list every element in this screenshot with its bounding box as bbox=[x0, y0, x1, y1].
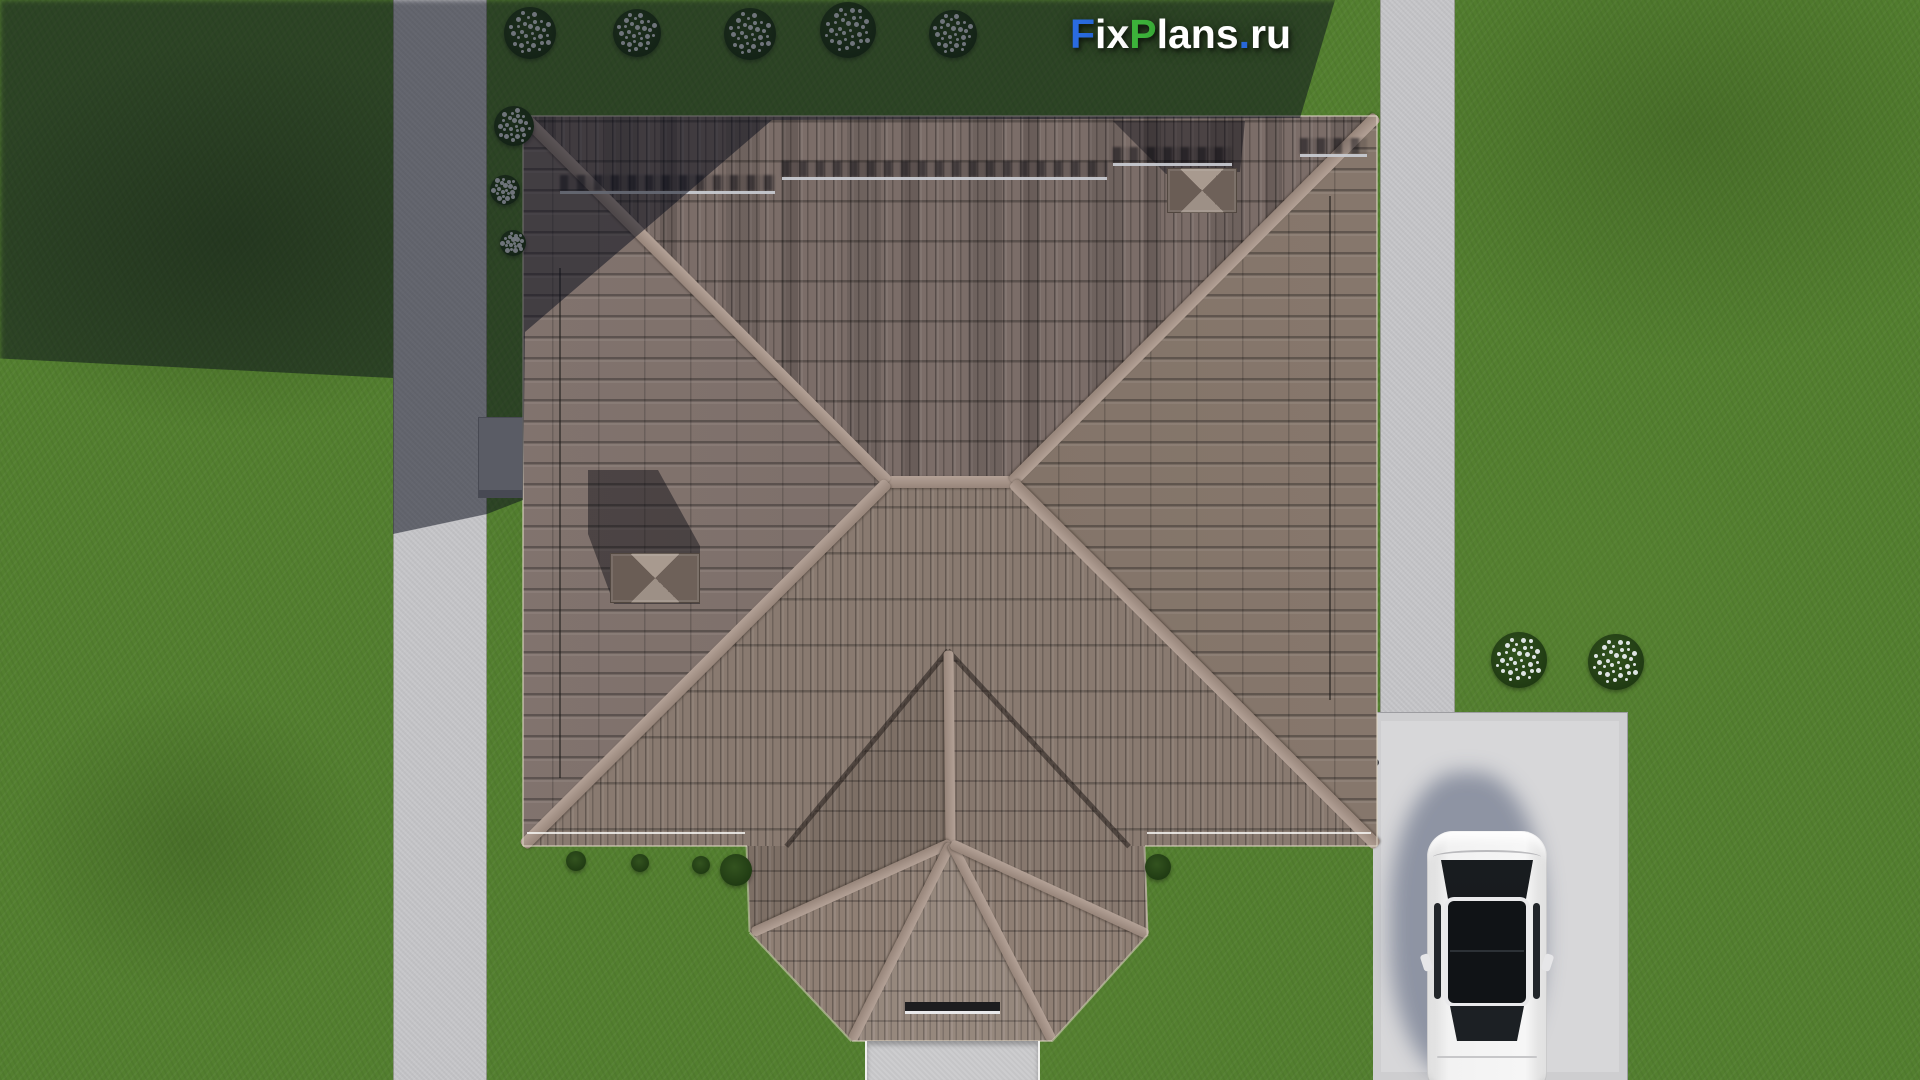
car-roof-seam bbox=[1450, 950, 1524, 952]
green-bush bbox=[692, 856, 710, 874]
flower-dot bbox=[1496, 664, 1499, 667]
flower-dot bbox=[1622, 654, 1627, 659]
flower-dot bbox=[1509, 657, 1513, 661]
snow-guard-bar bbox=[1300, 154, 1367, 157]
flower-dot bbox=[1620, 648, 1624, 652]
gutter-highlight bbox=[527, 832, 745, 835]
flower-dot bbox=[1632, 651, 1637, 656]
snow-guard-shadow bbox=[1300, 138, 1367, 154]
flower-dot bbox=[1528, 662, 1533, 667]
flower-dot bbox=[1515, 643, 1518, 646]
roof-valley bbox=[946, 648, 1131, 847]
roof-ridge bbox=[1008, 478, 1381, 850]
flower-dot bbox=[1513, 661, 1517, 665]
flower-dot bbox=[1508, 670, 1513, 675]
roof-eave-line bbox=[1376, 116, 1378, 846]
flower-dot bbox=[1625, 664, 1630, 669]
roof-ridge bbox=[944, 650, 956, 843]
flower-dot bbox=[1594, 654, 1598, 658]
entry-doormat bbox=[905, 1002, 1000, 1011]
brand-letter: . bbox=[1239, 11, 1250, 57]
green-bush bbox=[631, 854, 649, 872]
flower-dot bbox=[1520, 659, 1523, 662]
snow-guard-shadow bbox=[782, 161, 1107, 177]
flower-dot bbox=[1612, 645, 1615, 648]
flower-dot bbox=[1506, 663, 1509, 666]
flower-dot bbox=[1627, 671, 1631, 675]
flower-dot bbox=[1603, 665, 1606, 668]
flower-dot bbox=[1516, 676, 1520, 680]
green-bush bbox=[566, 851, 586, 871]
flower-dot bbox=[1505, 643, 1510, 648]
flower-dot bbox=[1515, 668, 1518, 671]
flower-dot bbox=[1517, 651, 1522, 656]
flower-dot bbox=[1528, 676, 1531, 679]
flower-dot bbox=[1530, 646, 1533, 649]
flower-bush bbox=[1491, 632, 1547, 688]
flower-dot bbox=[1625, 678, 1628, 681]
roof-eave-line bbox=[749, 931, 852, 1041]
gutter-highlight bbox=[1147, 832, 1371, 835]
car-side-window-right bbox=[1533, 903, 1540, 999]
flower-dot bbox=[1626, 641, 1630, 645]
flower-dot bbox=[1606, 659, 1610, 663]
flower-dot bbox=[1530, 669, 1534, 673]
flower-dot bbox=[1593, 666, 1596, 669]
brand-letter: P bbox=[1129, 11, 1156, 57]
flower-dot bbox=[1602, 645, 1607, 650]
flower-dot bbox=[1532, 655, 1536, 659]
flower-dot bbox=[1500, 658, 1505, 663]
brand-letter: ru bbox=[1250, 11, 1291, 57]
brand-letter: F bbox=[1070, 11, 1095, 57]
car-roof-glass bbox=[1448, 901, 1526, 1003]
roof-eave-line bbox=[1145, 845, 1377, 847]
flower-dot bbox=[1523, 646, 1527, 650]
render-scene: FixPlans.ru bbox=[0, 0, 1920, 1080]
flower-dot bbox=[1501, 669, 1505, 673]
roof-eave-line bbox=[523, 845, 747, 847]
flower-dot bbox=[1598, 671, 1602, 675]
porch-step-highlight bbox=[905, 1011, 1000, 1014]
flower-dot bbox=[1605, 672, 1610, 677]
roof-ridge bbox=[519, 478, 892, 850]
roof-valley bbox=[784, 648, 950, 847]
roof-conductor-line bbox=[1329, 196, 1331, 700]
flower-dot bbox=[1510, 638, 1514, 642]
flower-dot bbox=[1505, 651, 1508, 654]
flower-dot bbox=[1509, 678, 1512, 681]
snow-guard-bar bbox=[1113, 163, 1232, 166]
flower-dot bbox=[1529, 639, 1533, 643]
flower-dot bbox=[1521, 671, 1526, 676]
flower-dot bbox=[1627, 648, 1630, 651]
flower-dot bbox=[1607, 640, 1611, 644]
flower-dot bbox=[1512, 648, 1516, 652]
porch-steps bbox=[865, 1041, 1040, 1080]
flower-dot bbox=[1618, 640, 1623, 645]
brand-letter: lans bbox=[1157, 11, 1239, 57]
flower-dot bbox=[1614, 653, 1619, 658]
roof-ridge bbox=[888, 476, 1012, 488]
flower-dot bbox=[1619, 667, 1622, 670]
roof-eave-line bbox=[1051, 933, 1148, 1041]
roof-conductor-line bbox=[559, 268, 561, 778]
snow-guard-bar bbox=[782, 177, 1107, 180]
flower-dot bbox=[1535, 649, 1540, 654]
green-bush bbox=[1145, 854, 1171, 880]
flower-dot bbox=[1606, 680, 1609, 683]
flower-dot bbox=[1633, 663, 1636, 666]
flower-dot bbox=[1536, 661, 1539, 664]
flower-dot bbox=[1633, 670, 1638, 675]
flower-dot bbox=[1525, 652, 1530, 657]
flower-dot bbox=[1522, 665, 1525, 668]
brand-watermark: FixPlans.ru bbox=[1070, 11, 1291, 58]
flower-dot bbox=[1629, 657, 1633, 661]
snow-guard-shadow bbox=[1113, 147, 1232, 163]
flower-dot bbox=[1612, 670, 1615, 673]
car-trunk-seam bbox=[1437, 1056, 1537, 1058]
flower-dot bbox=[1521, 638, 1526, 643]
flower-dot bbox=[1602, 653, 1605, 656]
flower-dot bbox=[1617, 661, 1620, 664]
flower-dot bbox=[1613, 678, 1617, 682]
flower-dot bbox=[1618, 673, 1623, 678]
flower-dot bbox=[1497, 652, 1501, 656]
green-bush bbox=[720, 854, 752, 886]
flower-dot bbox=[1597, 660, 1602, 665]
flower-dot bbox=[1609, 650, 1613, 654]
flower-dot bbox=[1536, 668, 1541, 673]
brand-letter: ix bbox=[1095, 11, 1129, 57]
flower-dot bbox=[1610, 663, 1614, 667]
flower-bush bbox=[1588, 634, 1644, 690]
car-side-window-left bbox=[1434, 903, 1441, 999]
